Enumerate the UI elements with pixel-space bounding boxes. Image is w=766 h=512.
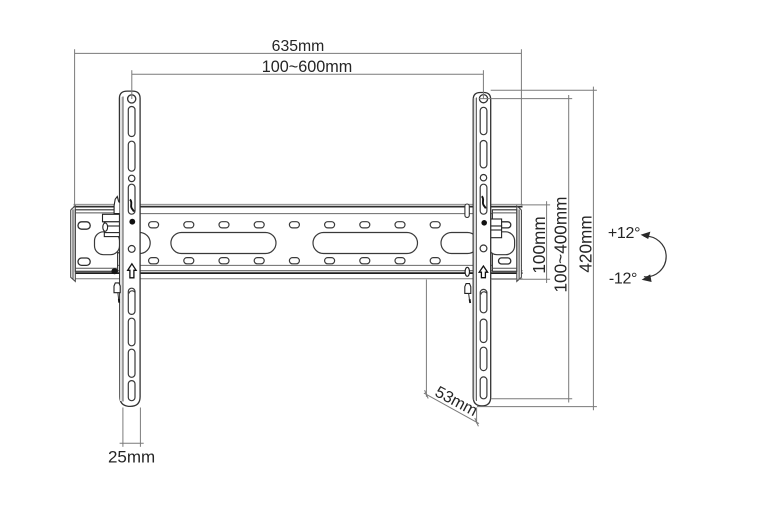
svg-text:100mm: 100mm (529, 216, 549, 273)
svg-text:25mm: 25mm (108, 448, 155, 467)
svg-text:100~400mm: 100~400mm (551, 196, 571, 292)
svg-text:420mm: 420mm (576, 215, 596, 272)
svg-text:+12°: +12° (608, 225, 640, 242)
svg-text:-12°: -12° (609, 271, 637, 288)
svg-text:100~600mm: 100~600mm (262, 58, 352, 76)
svg-text:635mm: 635mm (272, 38, 325, 55)
